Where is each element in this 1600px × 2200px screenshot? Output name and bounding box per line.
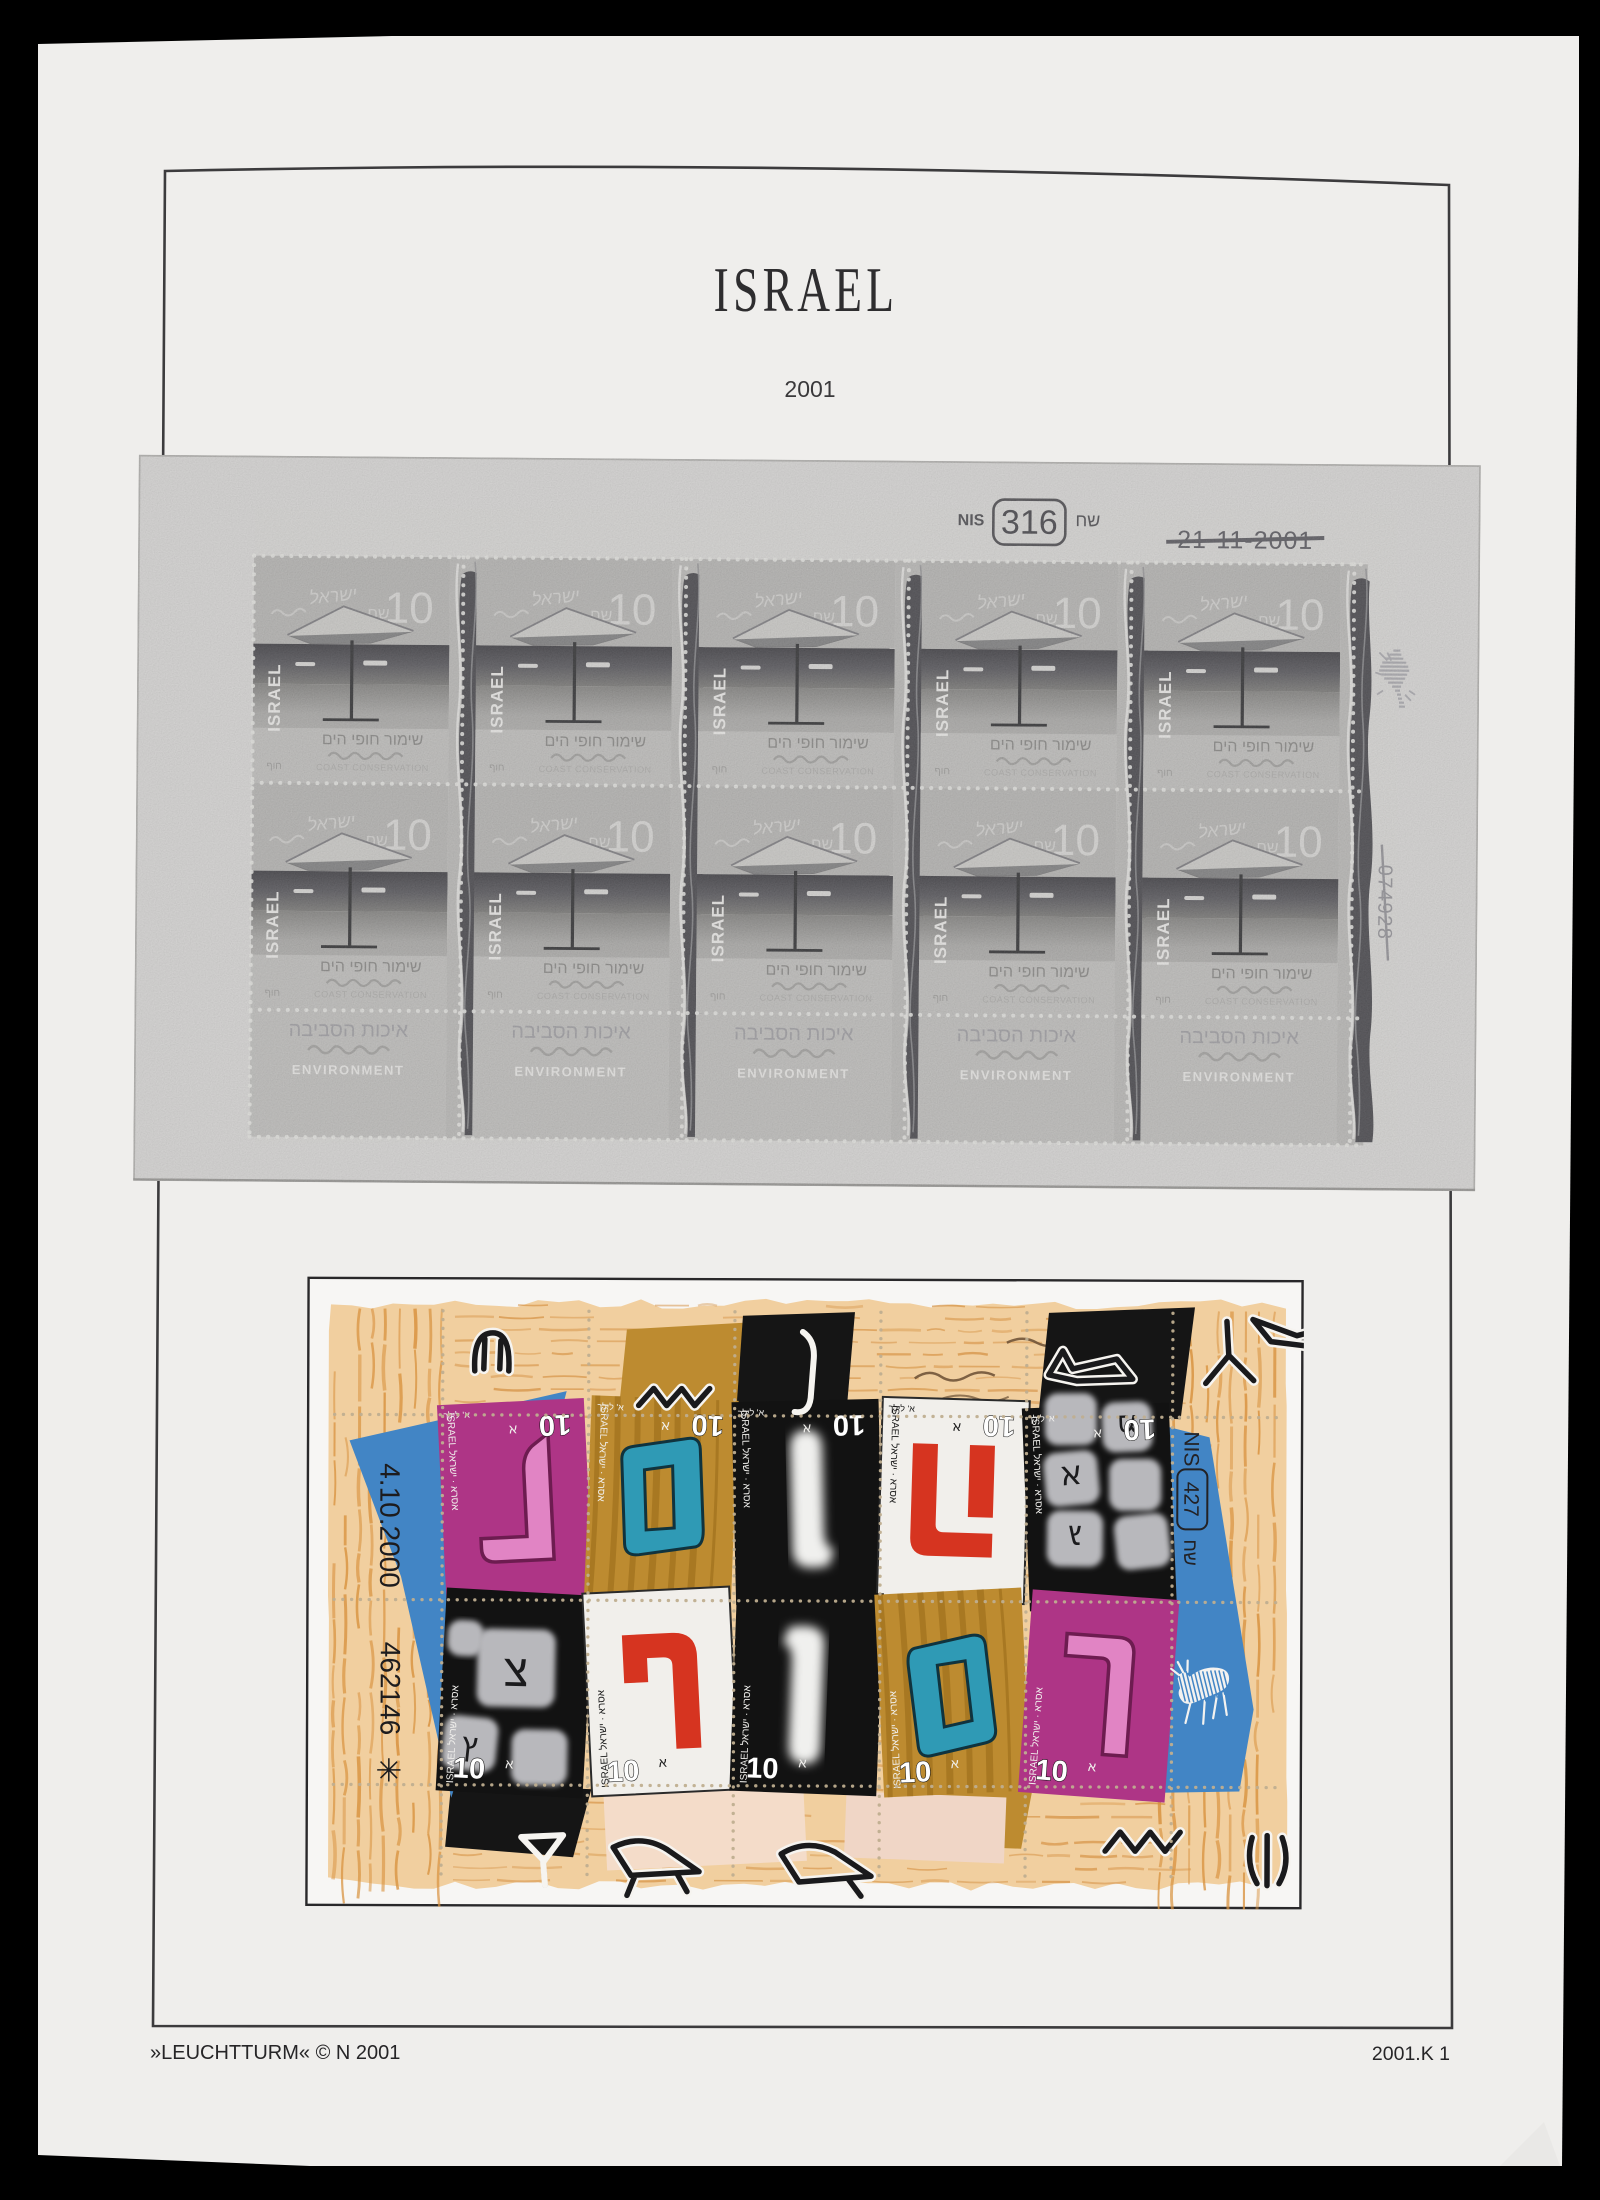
svg-text:א' לילך: א' לילך <box>597 1401 624 1412</box>
svg-text:ג: ג <box>1068 1519 1082 1555</box>
svg-text:א' לילך: א' לילך <box>888 1403 915 1414</box>
svg-text:א' לילך: א' לילך <box>1028 1413 1055 1424</box>
svg-text:10: 10 <box>898 1756 932 1790</box>
svg-text:א: א <box>798 1755 807 1770</box>
svg-text:א: א <box>1060 1458 1083 1495</box>
svg-text:צ: צ <box>503 1645 529 1697</box>
svg-text:✳: ✳ <box>375 1753 402 1789</box>
svg-text:10: 10 <box>452 1752 486 1786</box>
svg-text:NIS: NIS <box>1179 1431 1202 1466</box>
svg-text:א: א <box>658 1755 667 1770</box>
svg-text:שח: שח <box>1179 1539 1200 1566</box>
svg-text:427: 427 <box>1179 1482 1202 1517</box>
svg-text:10: 10 <box>982 1409 1015 1442</box>
svg-text:10: 10 <box>1034 1754 1069 1788</box>
svg-text:10: 10 <box>832 1408 865 1441</box>
svg-text:א: א <box>953 1420 962 1435</box>
svg-text:10: 10 <box>746 1752 779 1785</box>
svg-text:א: א <box>1087 1759 1096 1775</box>
svg-text:ISRAEL אסרא · ישראל: ISRAEL אסרא · ישראל <box>739 1410 753 1509</box>
svg-text:10: 10 <box>538 1408 572 1442</box>
svg-text:462146: 462146 <box>375 1642 406 1736</box>
svg-text:א: א <box>505 1756 514 1771</box>
svg-text:10: 10 <box>691 1408 724 1441</box>
svg-text:א: א <box>509 1422 518 1437</box>
svg-text:10: 10 <box>606 1755 640 1789</box>
svg-text:א: א <box>1093 1426 1102 1441</box>
svg-text:4.10.2000: 4.10.2000 <box>374 1463 405 1588</box>
svg-text:א' לילך: א' לילך <box>738 1407 765 1418</box>
svg-text:א: א <box>661 1419 670 1434</box>
svg-text:א: א <box>803 1421 812 1436</box>
svg-text:א: א <box>950 1756 959 1771</box>
